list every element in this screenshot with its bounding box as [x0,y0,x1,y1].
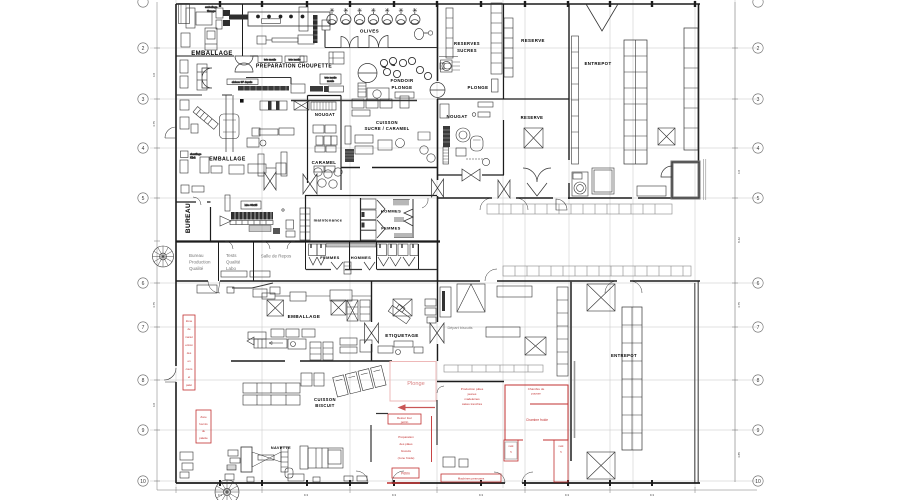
svg-text:madeleines: madeleines [464,397,480,401]
svg-text:en: en [187,359,191,363]
svg-text:Pétrin: Pétrin [401,472,410,476]
svg-text:4.75: 4.75 [737,302,741,308]
svg-text:3: 3 [142,97,145,103]
svg-text:4.85: 4.85 [737,452,741,458]
svg-text:HOMMES: HOMMES [351,255,371,260]
svg-text:4: 4 [757,146,760,152]
svg-text:cloison 30' depuis: cloison 30' depuis [232,80,253,84]
svg-text:Tests: Tests [226,253,237,258]
svg-text:CUISSON: CUISSON [376,120,398,125]
svg-text:fournis: fournis [199,422,208,426]
svg-text:(zone froide): (zone froide) [398,456,415,460]
svg-text:RESERVE: RESERVE [521,38,545,43]
svg-text:9: 9 [757,428,760,434]
svg-text:6: 6 [757,281,760,287]
svg-text:EMBALLAGE: EMBALLAGE [191,51,233,57]
svg-text:Départ biscuits: Départ biscuits [447,326,472,330]
svg-text:Zone: Zone [186,319,193,323]
svg-text:RESERVE: RESERVE [521,115,544,120]
svg-text:PREPARATION CHOUPETTE: PREPARATION CHOUPETTE [256,64,333,70]
svg-text:4.8: 4.8 [737,170,741,175]
svg-text:tete moule: tete moule [288,58,301,62]
svg-text:palette: palette [199,436,208,440]
svg-text:10: 10 [140,479,146,485]
svg-text:Production: Production [189,260,211,265]
svg-text:9.3: 9.3 [479,493,484,497]
svg-text:3: 3 [757,97,760,103]
svg-text:9.3: 9.3 [392,493,397,497]
svg-text:HOMMES: HOMMES [381,209,401,214]
svg-text:BUREAU: BUREAU [185,203,192,233]
svg-text:OLIVES: OLIVES [360,29,379,34]
svg-text:4.75: 4.75 [152,121,156,127]
svg-text:9.3: 9.3 [650,493,655,497]
svg-text:des pâtes: des pâtes [399,442,413,446]
svg-text:cakes tranchés: cakes tranchés [462,402,483,406]
svg-text:maintenance: maintenance [314,218,343,223]
svg-text:PLONGE: PLONGE [468,85,489,90]
svg-text:de: de [187,327,191,331]
svg-text:8.42: 8.42 [737,237,741,243]
svg-text:8: 8 [142,378,145,384]
svg-text:manut: manut [185,335,193,339]
svg-text:5: 5 [142,196,145,202]
svg-text:9.3: 9.3 [565,493,570,497]
svg-text:4.8: 4.8 [152,403,156,408]
svg-text:8: 8 [757,378,760,384]
svg-text:NOUGAT: NOUGAT [446,114,467,119]
svg-text:BISCUIT: BISCUIT [315,403,335,408]
svg-text:Qualité: Qualité [226,260,241,265]
svg-text:ETIQUETAGE: ETIQUETAGE [385,333,419,338]
svg-text:2: 2 [142,46,145,52]
svg-text:5: 5 [757,196,760,202]
svg-text:EMBALLAGE: EMBALLAGE [288,314,321,319]
svg-text:Salle de Repos: Salle de Repos [261,254,292,259]
svg-text:NOUGAT: NOUGAT [315,112,335,117]
svg-text:6: 6 [142,281,145,287]
svg-text:Machines peseuses: Machines peseuses [458,477,485,481]
svg-text:FONDOIR: FONDOIR [390,78,413,83]
svg-text:et: et [188,375,191,379]
svg-text:rack: rack [509,444,515,448]
svg-text:pétrin: pétrin [401,420,409,424]
svg-text:CARAMEL: CARAMEL [312,160,337,165]
svg-text:labo 60x35: labo 60x35 [245,203,258,207]
svg-text:SUCRE / CARAMEL: SUCRE / CARAMEL [364,126,409,131]
svg-text:Qualité: Qualité [189,266,204,271]
svg-text:tete moule: tete moule [264,58,277,62]
svg-text:Chambre froide: Chambre froide [526,418,548,422]
svg-text:4.8: 4.8 [152,73,156,78]
svg-text:PLONGE: PLONGE [392,85,413,90]
svg-text:Klixit: Klixit [190,156,196,160]
svg-text:CUISSON: CUISSON [314,397,336,402]
svg-text:Bureau: Bureau [189,253,204,258]
svg-text:pousse: pousse [531,392,541,396]
svg-text:Plonge: Plonge [407,381,424,387]
svg-text:4.75: 4.75 [152,302,156,308]
svg-text:ENTREPOT: ENTREPOT [611,353,637,358]
svg-text:9.3: 9.3 [304,493,309,497]
svg-text:RESERVES: RESERVES [454,41,480,46]
svg-text:des: des [187,351,192,355]
svg-text:tete moule: tete moule [324,76,337,80]
svg-text:du: du [202,429,206,433]
svg-text:chauffage: chauffage [190,152,202,156]
svg-text:cours: cours [186,367,193,371]
svg-text:Chambre de: Chambre de [528,387,545,391]
svg-text:ention: ention [185,343,193,347]
svg-text:jaunes: jaunes [467,392,477,396]
svg-text:EMBALLAGE: EMBALLAGE [209,157,246,163]
svg-text:9: 9 [142,428,145,434]
svg-text:Zone: Zone [200,415,207,419]
svg-text:Production pâtes: Production pâtes [461,387,484,391]
svg-text:7: 7 [757,325,760,331]
svg-text:SUCRES: SUCRES [457,48,477,53]
svg-text:Préparation: Préparation [398,435,414,439]
svg-text:palet: palet [186,383,192,387]
svg-text:rack: rack [559,444,565,448]
svg-text:Labo: Labo [226,266,237,271]
svg-text:4: 4 [142,146,145,152]
svg-text:2: 2 [757,46,760,52]
svg-text:ENTREPOT: ENTREPOT [584,61,611,66]
svg-text:filmage: filmage [207,9,216,13]
svg-text:10: 10 [755,479,761,485]
svg-text:moule: moule [327,79,335,83]
svg-text:7: 7 [142,325,145,331]
svg-text:biscuits: biscuits [401,449,412,453]
